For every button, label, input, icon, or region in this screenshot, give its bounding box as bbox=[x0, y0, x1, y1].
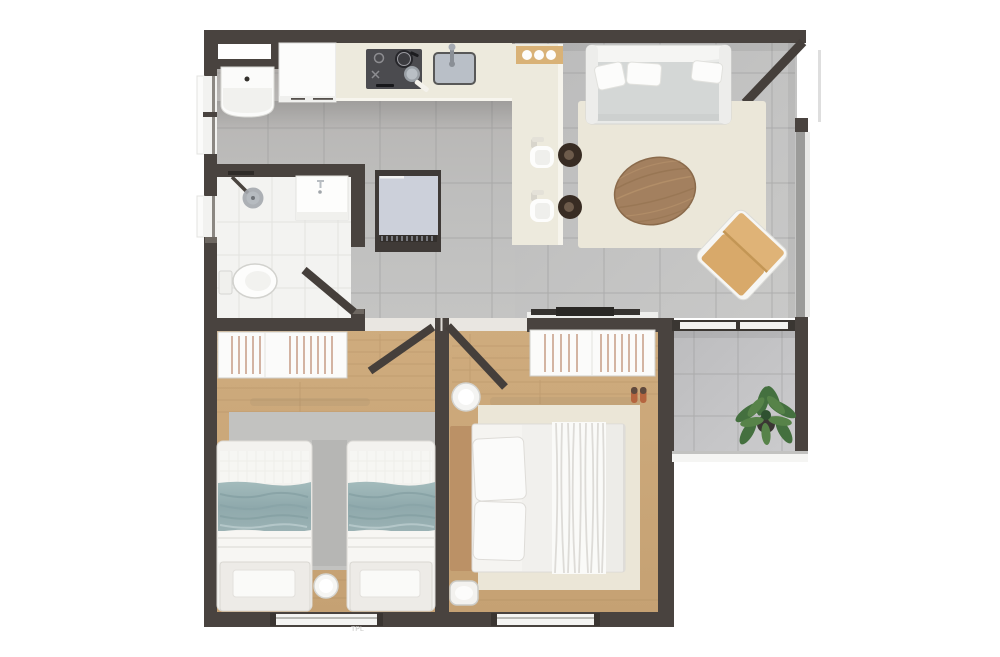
svg-text:TPL: TPL bbox=[351, 626, 364, 633]
